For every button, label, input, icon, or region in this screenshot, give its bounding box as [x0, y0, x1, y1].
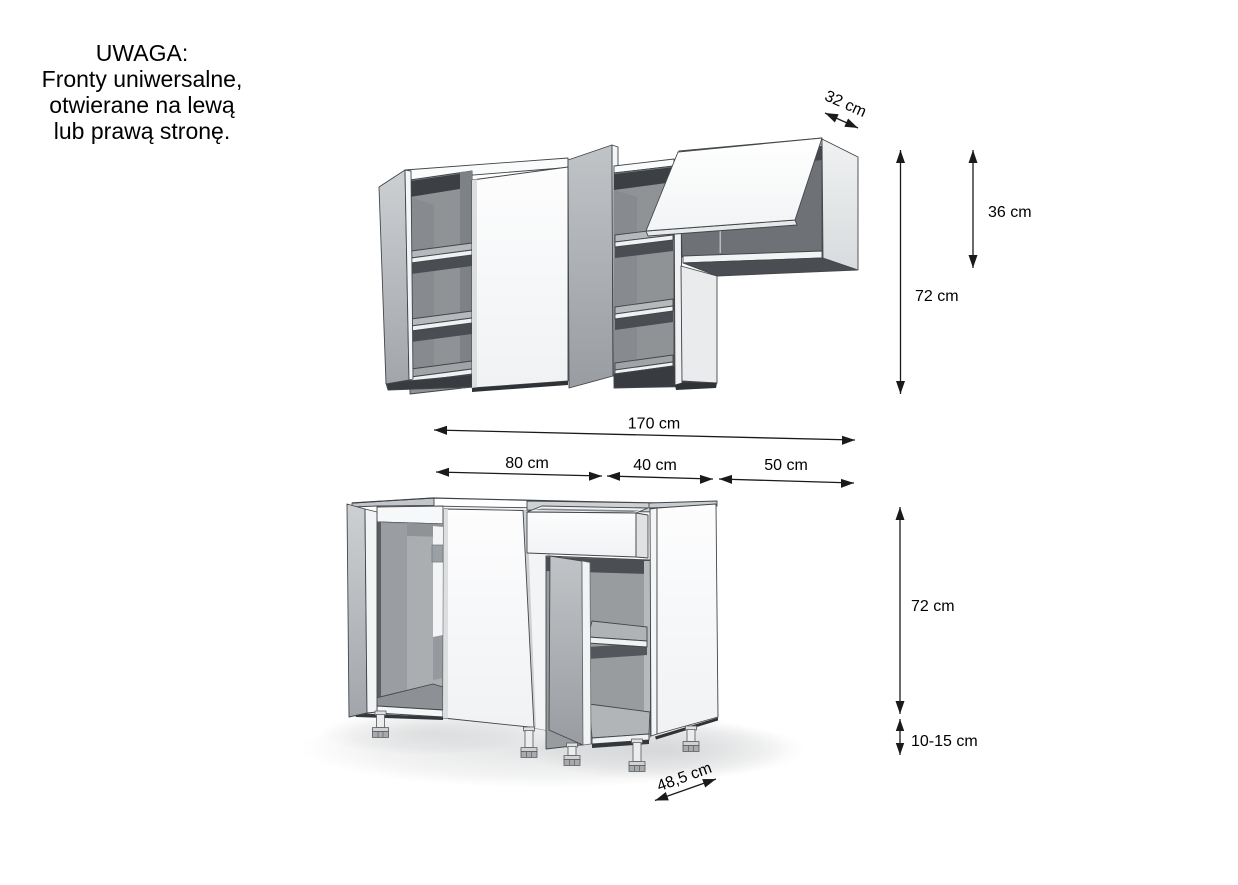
svg-text:lub prawą stronę.: lub prawą stronę. — [54, 118, 230, 144]
svg-text:170 cm: 170 cm — [628, 416, 680, 433]
svg-text:36 cm: 36 cm — [988, 204, 1032, 221]
svg-text:72 cm: 72 cm — [911, 598, 955, 615]
svg-text:UWAGA:: UWAGA: — [96, 40, 188, 66]
svg-text:Fronty uniwersalne,: Fronty uniwersalne, — [42, 66, 243, 92]
svg-text:40 cm: 40 cm — [633, 457, 677, 474]
svg-text:otwierane na lewą: otwierane na lewą — [49, 92, 235, 118]
svg-text:72 cm: 72 cm — [915, 288, 959, 305]
svg-text:10-15 cm: 10-15 cm — [911, 733, 978, 750]
svg-text:50 cm: 50 cm — [764, 457, 808, 474]
svg-text:80 cm: 80 cm — [505, 455, 549, 472]
